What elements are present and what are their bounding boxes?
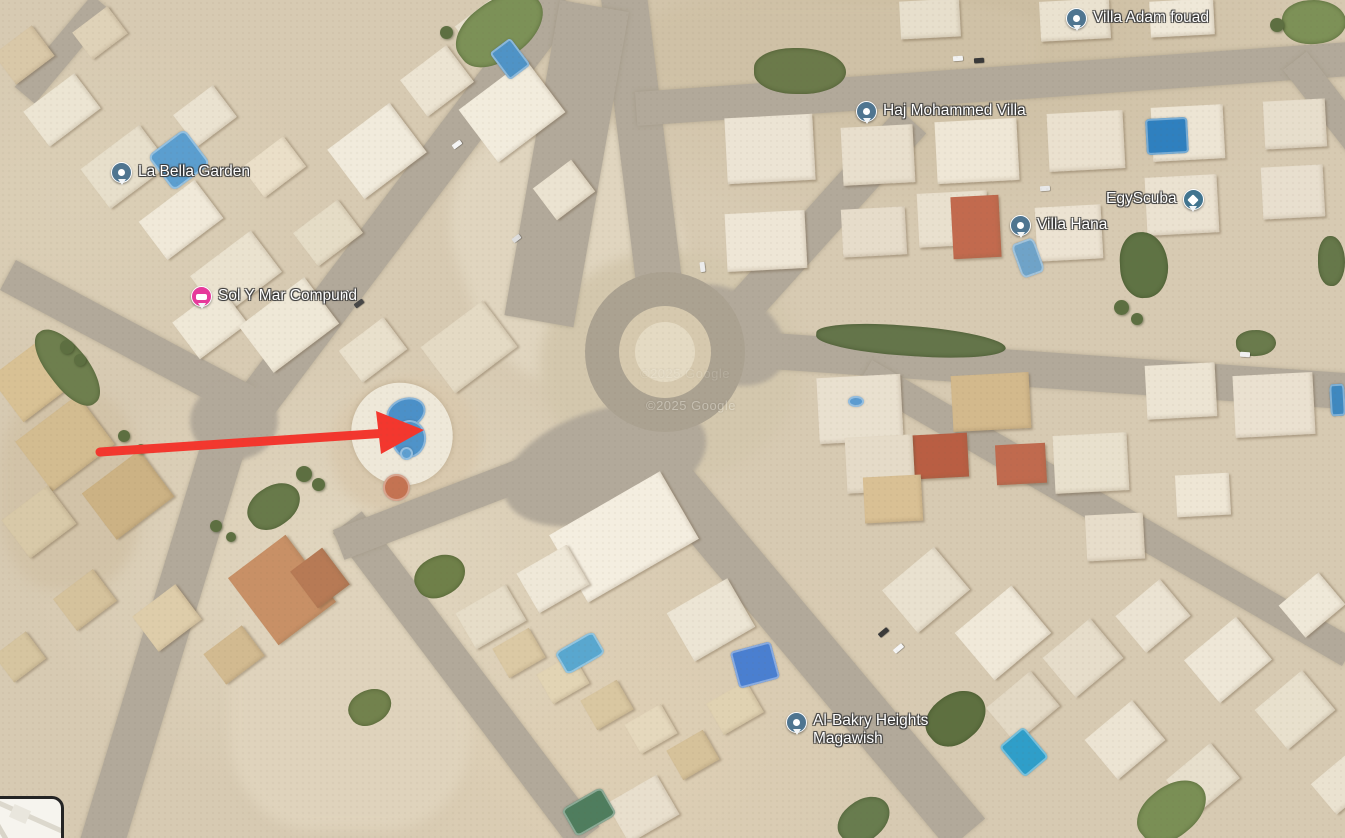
poi-pin-icon[interactable] <box>1066 8 1087 29</box>
bed-glyph-icon <box>196 294 207 300</box>
poi-label-text: Al-Bakry Heights Magawish <box>813 712 928 749</box>
dot-glyph-icon <box>1073 15 1080 22</box>
poi-pin-icon[interactable] <box>111 162 132 183</box>
dot-glyph-icon <box>863 108 870 115</box>
minimap-toggle[interactable] <box>0 796 64 838</box>
poi-pin-icon[interactable] <box>786 712 807 733</box>
map-label-egyscuba[interactable]: EgyScuba <box>1106 189 1204 210</box>
maps-app-window: Villa Adam fouadHaj Mohammed VillaLa Bel… <box>0 0 1345 838</box>
map-label-la-bella-garden[interactable]: La Bella Garden <box>111 162 250 183</box>
dot-glyph-icon <box>793 719 800 726</box>
poi-pin-icon[interactable] <box>856 101 877 122</box>
poi-label-text: EgyScuba <box>1106 190 1177 208</box>
dive-glyph-icon <box>1188 194 1199 205</box>
poi-label-text: Villa Hana <box>1037 216 1107 234</box>
lodging-pin-icon[interactable] <box>191 286 212 307</box>
poi-label-text: La Bella Garden <box>138 163 250 181</box>
map-label-al-bakry-heights-magawish[interactable]: Al-Bakry Heights Magawish <box>786 712 928 749</box>
poi-label-text: Villa Adam fouad <box>1093 9 1209 27</box>
scuba-shop-pin-icon[interactable] <box>1183 189 1204 210</box>
poi-pin-icon[interactable] <box>1010 215 1031 236</box>
poi-label-text: Haj Mohammed Villa <box>883 102 1026 120</box>
dot-glyph-icon <box>1017 222 1024 229</box>
map-label-villa-hana[interactable]: Villa Hana <box>1010 215 1107 236</box>
poi-labels-layer: Villa Adam fouadHaj Mohammed VillaLa Bel… <box>0 0 1345 838</box>
dot-glyph-icon <box>118 169 125 176</box>
map-label-sol-y-mar-compund[interactable]: Sol Y Mar Compund <box>191 286 357 307</box>
map-label-haj-mohammed-villa[interactable]: Haj Mohammed Villa <box>856 101 1026 122</box>
minimap-block <box>9 804 31 824</box>
poi-label-text: Sol Y Mar Compund <box>218 287 357 305</box>
map-label-villa-adam-fouad[interactable]: Villa Adam fouad <box>1066 8 1209 29</box>
